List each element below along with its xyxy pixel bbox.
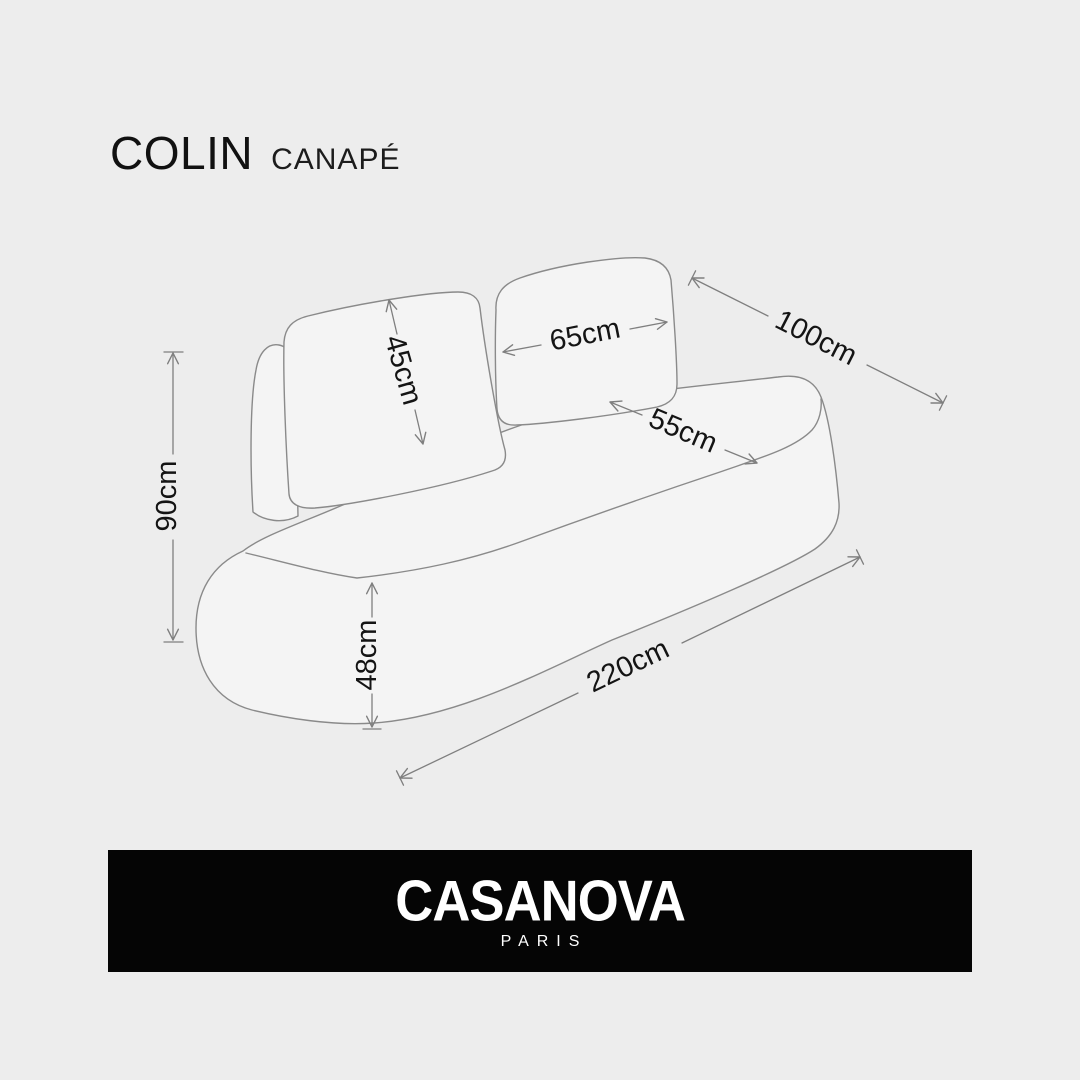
brand-banner: CASANOVA PARIS [108,850,972,972]
dim-total-height: 90cm [151,352,183,642]
dim-seat-height-label: 48cm [351,620,383,691]
brand-city-label: PARIS [493,934,588,950]
brand-logo: CASANOVA [395,872,685,929]
dim-total-height-label: 90cm [151,461,183,532]
product-dimension-poster: COLIN CANAPÉ 45cm 65cm [0,0,1080,1080]
dim-depth-label: 100cm [770,304,862,372]
